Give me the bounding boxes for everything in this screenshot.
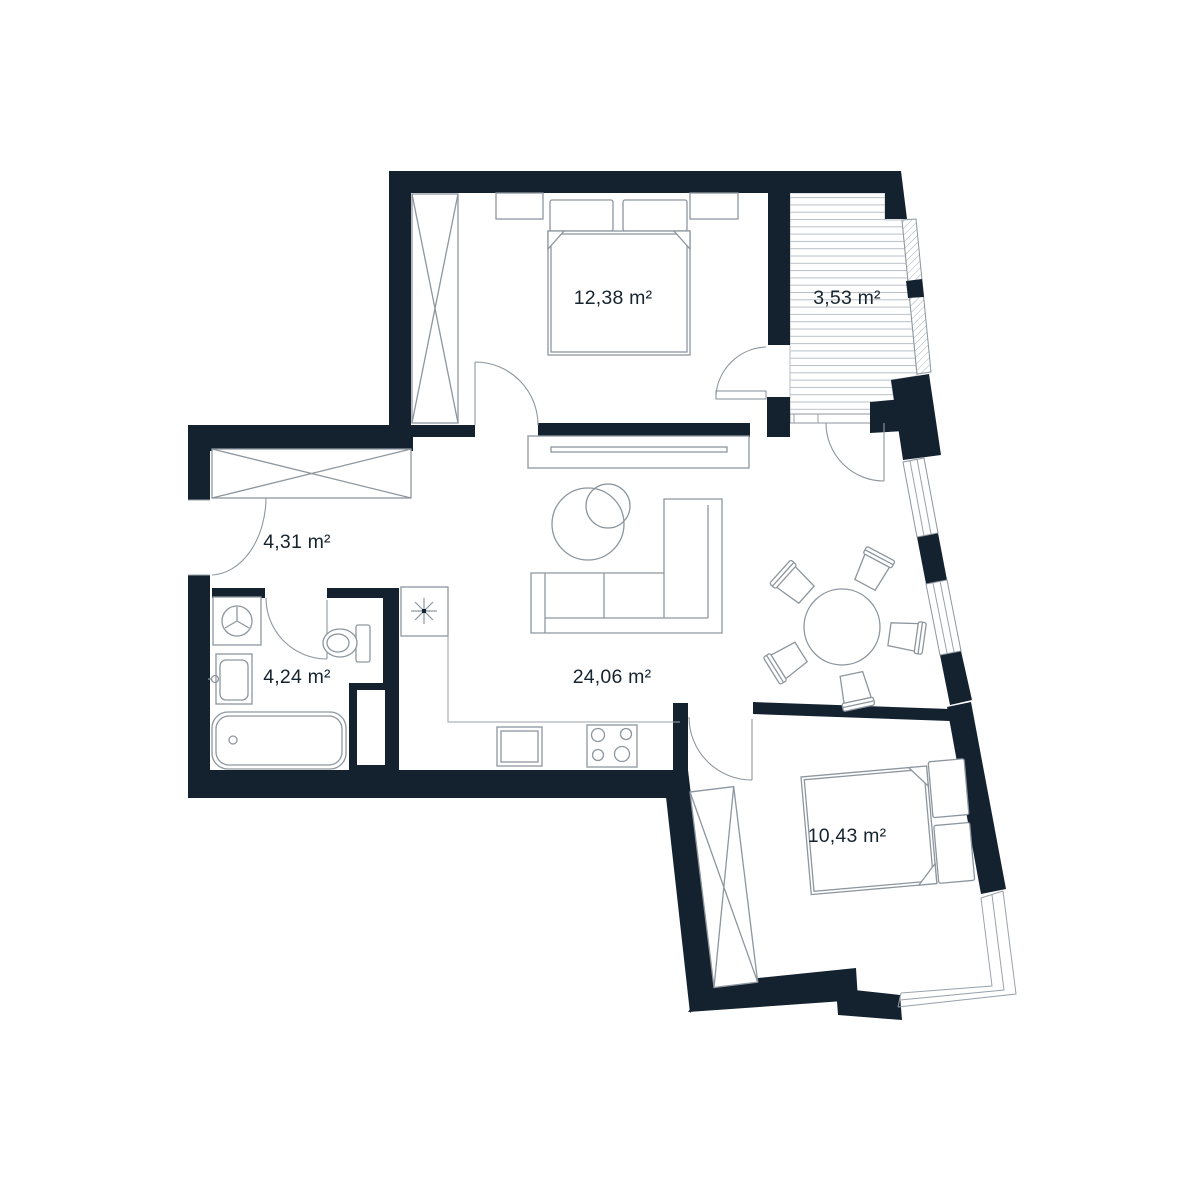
bathroom-area-label: 4,24 m² <box>263 666 331 688</box>
bedroom1-area-label: 12,38 m² <box>574 287 653 309</box>
door-entrance <box>212 498 266 575</box>
window-bedroom2-corner <box>898 891 1016 1007</box>
washing-machine <box>213 597 261 645</box>
wall-facade-block-2 <box>917 533 947 584</box>
hallway-wardrobe <box>212 449 411 498</box>
wall-left-lower <box>188 575 210 798</box>
wall-facade-block-3 <box>940 651 972 705</box>
dining-chair <box>887 618 926 655</box>
kitchen-sink <box>497 727 542 766</box>
shaft-void <box>357 690 385 765</box>
wall-bottom-exterior <box>188 770 688 798</box>
balcony-railing-post <box>906 279 924 298</box>
nightstand <box>496 193 543 219</box>
door-bedroom2 <box>689 717 752 780</box>
dining-set <box>763 546 926 711</box>
bedroom2-furniture <box>690 759 975 988</box>
toilet <box>323 625 370 662</box>
corner-sofa <box>531 499 722 633</box>
living-kitchen-area-label: 24,06 m² <box>573 666 652 688</box>
wall-hallway-top <box>188 425 413 451</box>
dining-chair <box>769 560 816 607</box>
dining-chair <box>763 639 810 685</box>
nightstand <box>690 193 738 219</box>
entrance-threshold <box>188 500 210 575</box>
wall-bedroom1-balcony <box>768 171 790 345</box>
hallway-area-label: 4,31 m² <box>263 531 331 553</box>
dining-chair <box>836 671 875 712</box>
window-living-lower <box>926 580 961 655</box>
door-bedroom1-balcony <box>716 347 766 399</box>
floor-plan-canvas: 12,38 m² 3,53 m² 4,31 m² 4,24 m² 24,06 m… <box>0 0 1200 1200</box>
sideboard <box>528 436 749 468</box>
dining-table <box>804 589 880 665</box>
wall-bedroom1-left <box>389 171 411 448</box>
cooktop <box>587 725 637 767</box>
balcony-area-label: 3,53 m² <box>813 287 881 309</box>
wardrobe <box>412 194 458 423</box>
wall-bedroom1-bottom-left <box>411 425 475 437</box>
double-bed <box>548 200 690 355</box>
hallway-furniture <box>212 449 411 498</box>
window-living-upper <box>903 458 938 537</box>
bathroom-sink <box>208 654 252 704</box>
fridge-unit <box>401 587 448 636</box>
bedroom2-area-label: 10,43 m² <box>808 825 887 847</box>
door-bathroom <box>266 598 327 659</box>
coffee-tables <box>552 484 630 560</box>
wall-balcony-column <box>767 397 790 437</box>
wall-left-upper <box>188 425 210 500</box>
utility-asterisk-icon <box>411 598 437 624</box>
floor-plan-drawing: 12,38 m² 3,53 m² 4,31 m² 4,24 m² 24,06 m… <box>0 0 1200 1200</box>
dining-chair <box>850 546 895 592</box>
bathtub <box>212 712 346 769</box>
wall-bedroom1-bottom-right <box>538 423 750 437</box>
wall-bedroom2-bottom-b <box>836 988 902 1020</box>
door-bedroom1 <box>475 362 538 425</box>
wall-facade-tab <box>870 399 904 433</box>
